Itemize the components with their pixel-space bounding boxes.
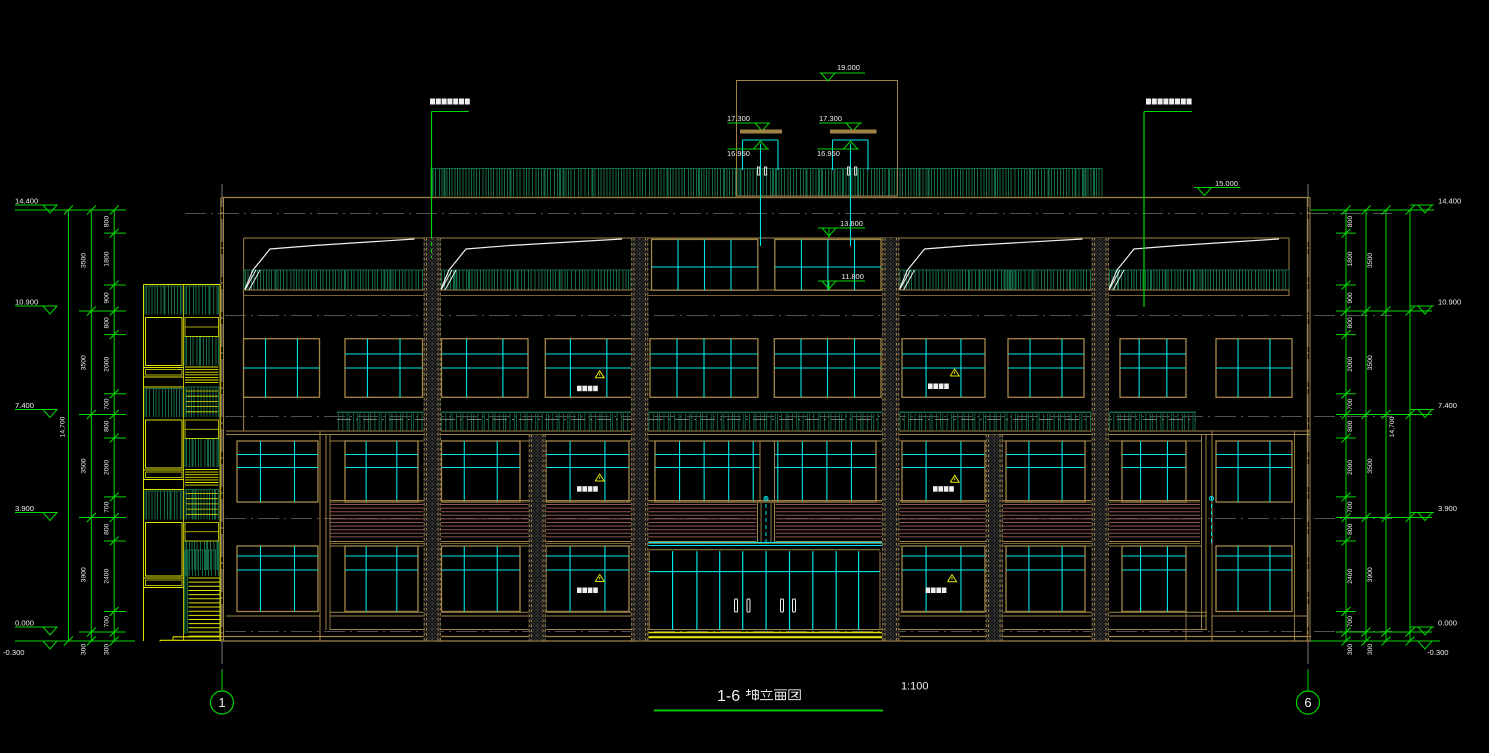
svg-text:300: 300: [1347, 644, 1354, 656]
svg-text:300: 300: [81, 644, 88, 656]
svg-text:800: 800: [104, 523, 111, 535]
svg-text:700: 700: [104, 616, 111, 628]
svg-text:700: 700: [104, 501, 111, 513]
svg-text:3500: 3500: [81, 253, 88, 268]
svg-text:-0.300: -0.300: [3, 648, 25, 657]
svg-text:900: 900: [1347, 292, 1354, 304]
svg-text:800: 800: [104, 216, 111, 228]
svg-text:800: 800: [1347, 216, 1354, 228]
svg-text:700: 700: [1347, 398, 1354, 410]
svg-text:2000: 2000: [104, 460, 111, 475]
svg-text:11.800: 11.800: [842, 272, 864, 281]
svg-text:700: 700: [1347, 501, 1354, 513]
svg-text:1: 1: [218, 695, 225, 710]
svg-text:1800: 1800: [104, 251, 111, 266]
svg-text:2400: 2400: [104, 568, 111, 583]
svg-text:3.900: 3.900: [1438, 504, 1457, 513]
svg-text:3500: 3500: [1367, 458, 1374, 473]
svg-text:700: 700: [1347, 616, 1354, 628]
svg-text:13.600: 13.600: [840, 219, 863, 228]
svg-text:3500: 3500: [1367, 253, 1374, 268]
svg-text:-0.300: -0.300: [1427, 648, 1449, 657]
svg-text:2000: 2000: [1347, 460, 1354, 475]
svg-text:14,700: 14,700: [60, 416, 67, 437]
svg-text:6: 6: [1304, 695, 1311, 710]
svg-text:16.950: 16.950: [817, 149, 840, 158]
svg-text:14,700: 14,700: [1389, 416, 1396, 437]
svg-text:800: 800: [1347, 523, 1354, 535]
svg-text:1-6: 1-6: [717, 688, 740, 705]
svg-text:800: 800: [104, 317, 111, 329]
svg-text:15.000: 15.000: [1215, 179, 1238, 188]
svg-text:300: 300: [104, 644, 111, 656]
svg-text:3900: 3900: [1367, 567, 1374, 582]
svg-text:3500: 3500: [1367, 355, 1374, 370]
svg-text:10.900: 10.900: [15, 298, 38, 307]
svg-text:2400: 2400: [1347, 568, 1354, 583]
svg-text:700: 700: [104, 398, 111, 410]
svg-text:14.400: 14.400: [15, 197, 38, 206]
svg-text:14.400: 14.400: [1438, 197, 1461, 206]
svg-text:19.000: 19.000: [837, 63, 860, 72]
svg-text:10.900: 10.900: [1438, 298, 1461, 307]
svg-text:3.900: 3.900: [15, 504, 34, 513]
svg-text:800: 800: [1347, 420, 1354, 432]
svg-text:3500: 3500: [81, 458, 88, 473]
svg-text:17.300: 17.300: [727, 114, 750, 123]
svg-text:7.400: 7.400: [15, 401, 34, 410]
svg-text:3900: 3900: [81, 567, 88, 582]
svg-text:300: 300: [1367, 644, 1374, 656]
svg-text:1:100: 1:100: [901, 681, 929, 693]
svg-text:2000: 2000: [1347, 356, 1354, 371]
svg-text:800: 800: [1347, 317, 1354, 329]
svg-text:17.300: 17.300: [819, 114, 842, 123]
svg-text:1800: 1800: [1347, 251, 1354, 266]
svg-text:16.950: 16.950: [727, 149, 750, 158]
svg-text:2000: 2000: [104, 356, 111, 371]
svg-text:3500: 3500: [81, 355, 88, 370]
svg-text:900: 900: [104, 292, 111, 304]
svg-text:7.400: 7.400: [1438, 401, 1457, 410]
svg-text:0.000: 0.000: [15, 619, 34, 628]
svg-text:800: 800: [104, 420, 111, 432]
svg-text:0.000: 0.000: [1438, 619, 1457, 628]
